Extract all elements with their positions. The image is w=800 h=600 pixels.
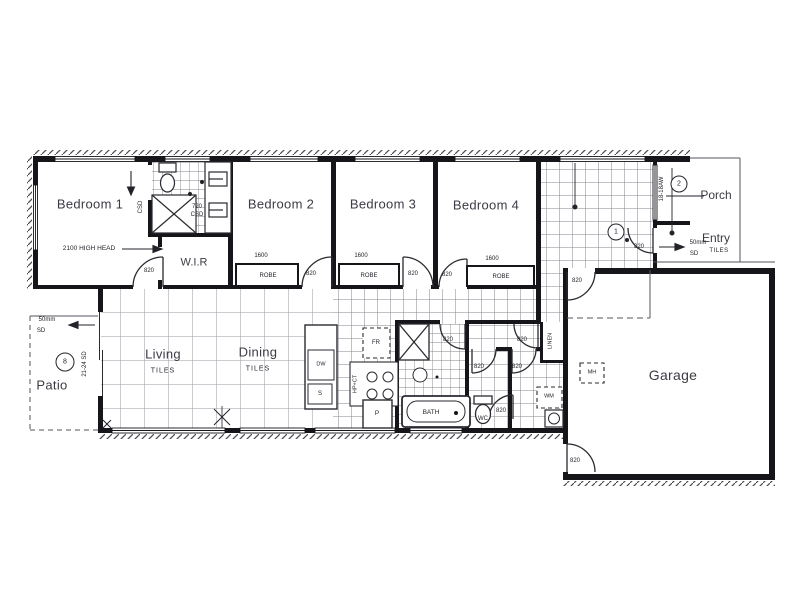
room-label-bedroom2: Bedroom 2 xyxy=(248,198,314,211)
robe-width-bed4: 1600 xyxy=(485,256,498,262)
floorplan-drawing xyxy=(0,0,800,600)
patio-step-sd: SD xyxy=(37,328,45,334)
door-tag-entry: 820 xyxy=(634,244,644,250)
cooktop-tag: HP+CT xyxy=(353,375,359,393)
dishwasher-tag: DW xyxy=(316,362,325,368)
entry-step-mm: 50mm xyxy=(690,240,707,246)
room-label-linen: LINEN xyxy=(548,333,554,349)
entry-floor-finish: TILES xyxy=(709,248,728,254)
marker-2: 2 xyxy=(671,176,688,193)
door-tag-bed2: 820 xyxy=(306,271,316,277)
robe-width-bed3: 1600 xyxy=(354,253,367,259)
marker-8-number: 8 xyxy=(63,359,67,366)
porch-window-code: 18-18AW xyxy=(659,177,665,202)
door-tag-wc: 820 xyxy=(474,364,484,370)
csd-tag-ensuite: CSD xyxy=(138,201,144,214)
marker-8: 8 xyxy=(56,353,75,372)
washing-machine-tag: WM xyxy=(544,394,554,400)
marker-2-number: 2 xyxy=(677,181,681,188)
robe-width-bed2: 1600 xyxy=(254,253,267,259)
room-label-bedroom1: Bedroom 1 xyxy=(57,198,123,211)
csd-width-tag: 720 xyxy=(192,204,202,210)
csd-tag: CSD xyxy=(191,212,204,218)
room-label-living: Living xyxy=(145,348,181,361)
pantry-tag: P xyxy=(375,411,379,418)
room-label-bedroom3: Bedroom 3 xyxy=(350,198,416,211)
door-tag-laundry: 820 xyxy=(512,364,522,370)
entry-step-sd: SD xyxy=(690,251,698,257)
door-tag-bed3: 820 xyxy=(408,271,418,277)
floorplan: Bedroom 1 Bedroom 2 Bedroom 3 Bedroom 4 … xyxy=(0,0,800,600)
robe-label-bed3: ROBE xyxy=(360,273,377,279)
manhole-tag: MH xyxy=(588,370,597,376)
patio-slider-code: 21-24 SD xyxy=(82,351,88,376)
door-tag-garage-top: 820 xyxy=(572,278,582,284)
marker-1: 1 xyxy=(608,224,625,241)
robes xyxy=(236,264,534,286)
door-tag-garage-rear: 820 xyxy=(570,458,580,464)
floor-finish-living: TILES xyxy=(151,368,175,375)
door-tag-linen: 820 xyxy=(517,337,527,343)
room-label-wir: W.I.R xyxy=(181,258,208,269)
note-high-head: 2100 HIGH HEAD xyxy=(63,246,115,253)
door-tag-bath: 820 xyxy=(443,337,453,343)
robe-label-bed2: ROBE xyxy=(259,273,276,279)
floor-finish-dining: TILES xyxy=(246,366,270,373)
room-label-garage: Garage xyxy=(649,368,698,382)
room-label-bedroom4: Bedroom 4 xyxy=(453,199,519,212)
patio-step-mm: 50mm xyxy=(39,317,56,323)
marker-1-number: 1 xyxy=(614,229,618,236)
room-label-porch: Porch xyxy=(700,189,731,201)
room-label-wc: WC xyxy=(478,416,488,422)
fridge-tag: FR xyxy=(372,340,380,346)
door-tag-bed1: 820 xyxy=(144,268,154,274)
room-label-bath: BATH xyxy=(423,410,440,417)
door-tag-bed4: 820 xyxy=(442,272,452,278)
robe-label-bed4: ROBE xyxy=(492,274,509,280)
room-label-patio: Patio xyxy=(36,379,67,392)
door-tag-laundry-rear: 820 xyxy=(496,408,506,414)
room-label-dining: Dining xyxy=(239,346,278,359)
sink-tag: S xyxy=(318,391,322,397)
